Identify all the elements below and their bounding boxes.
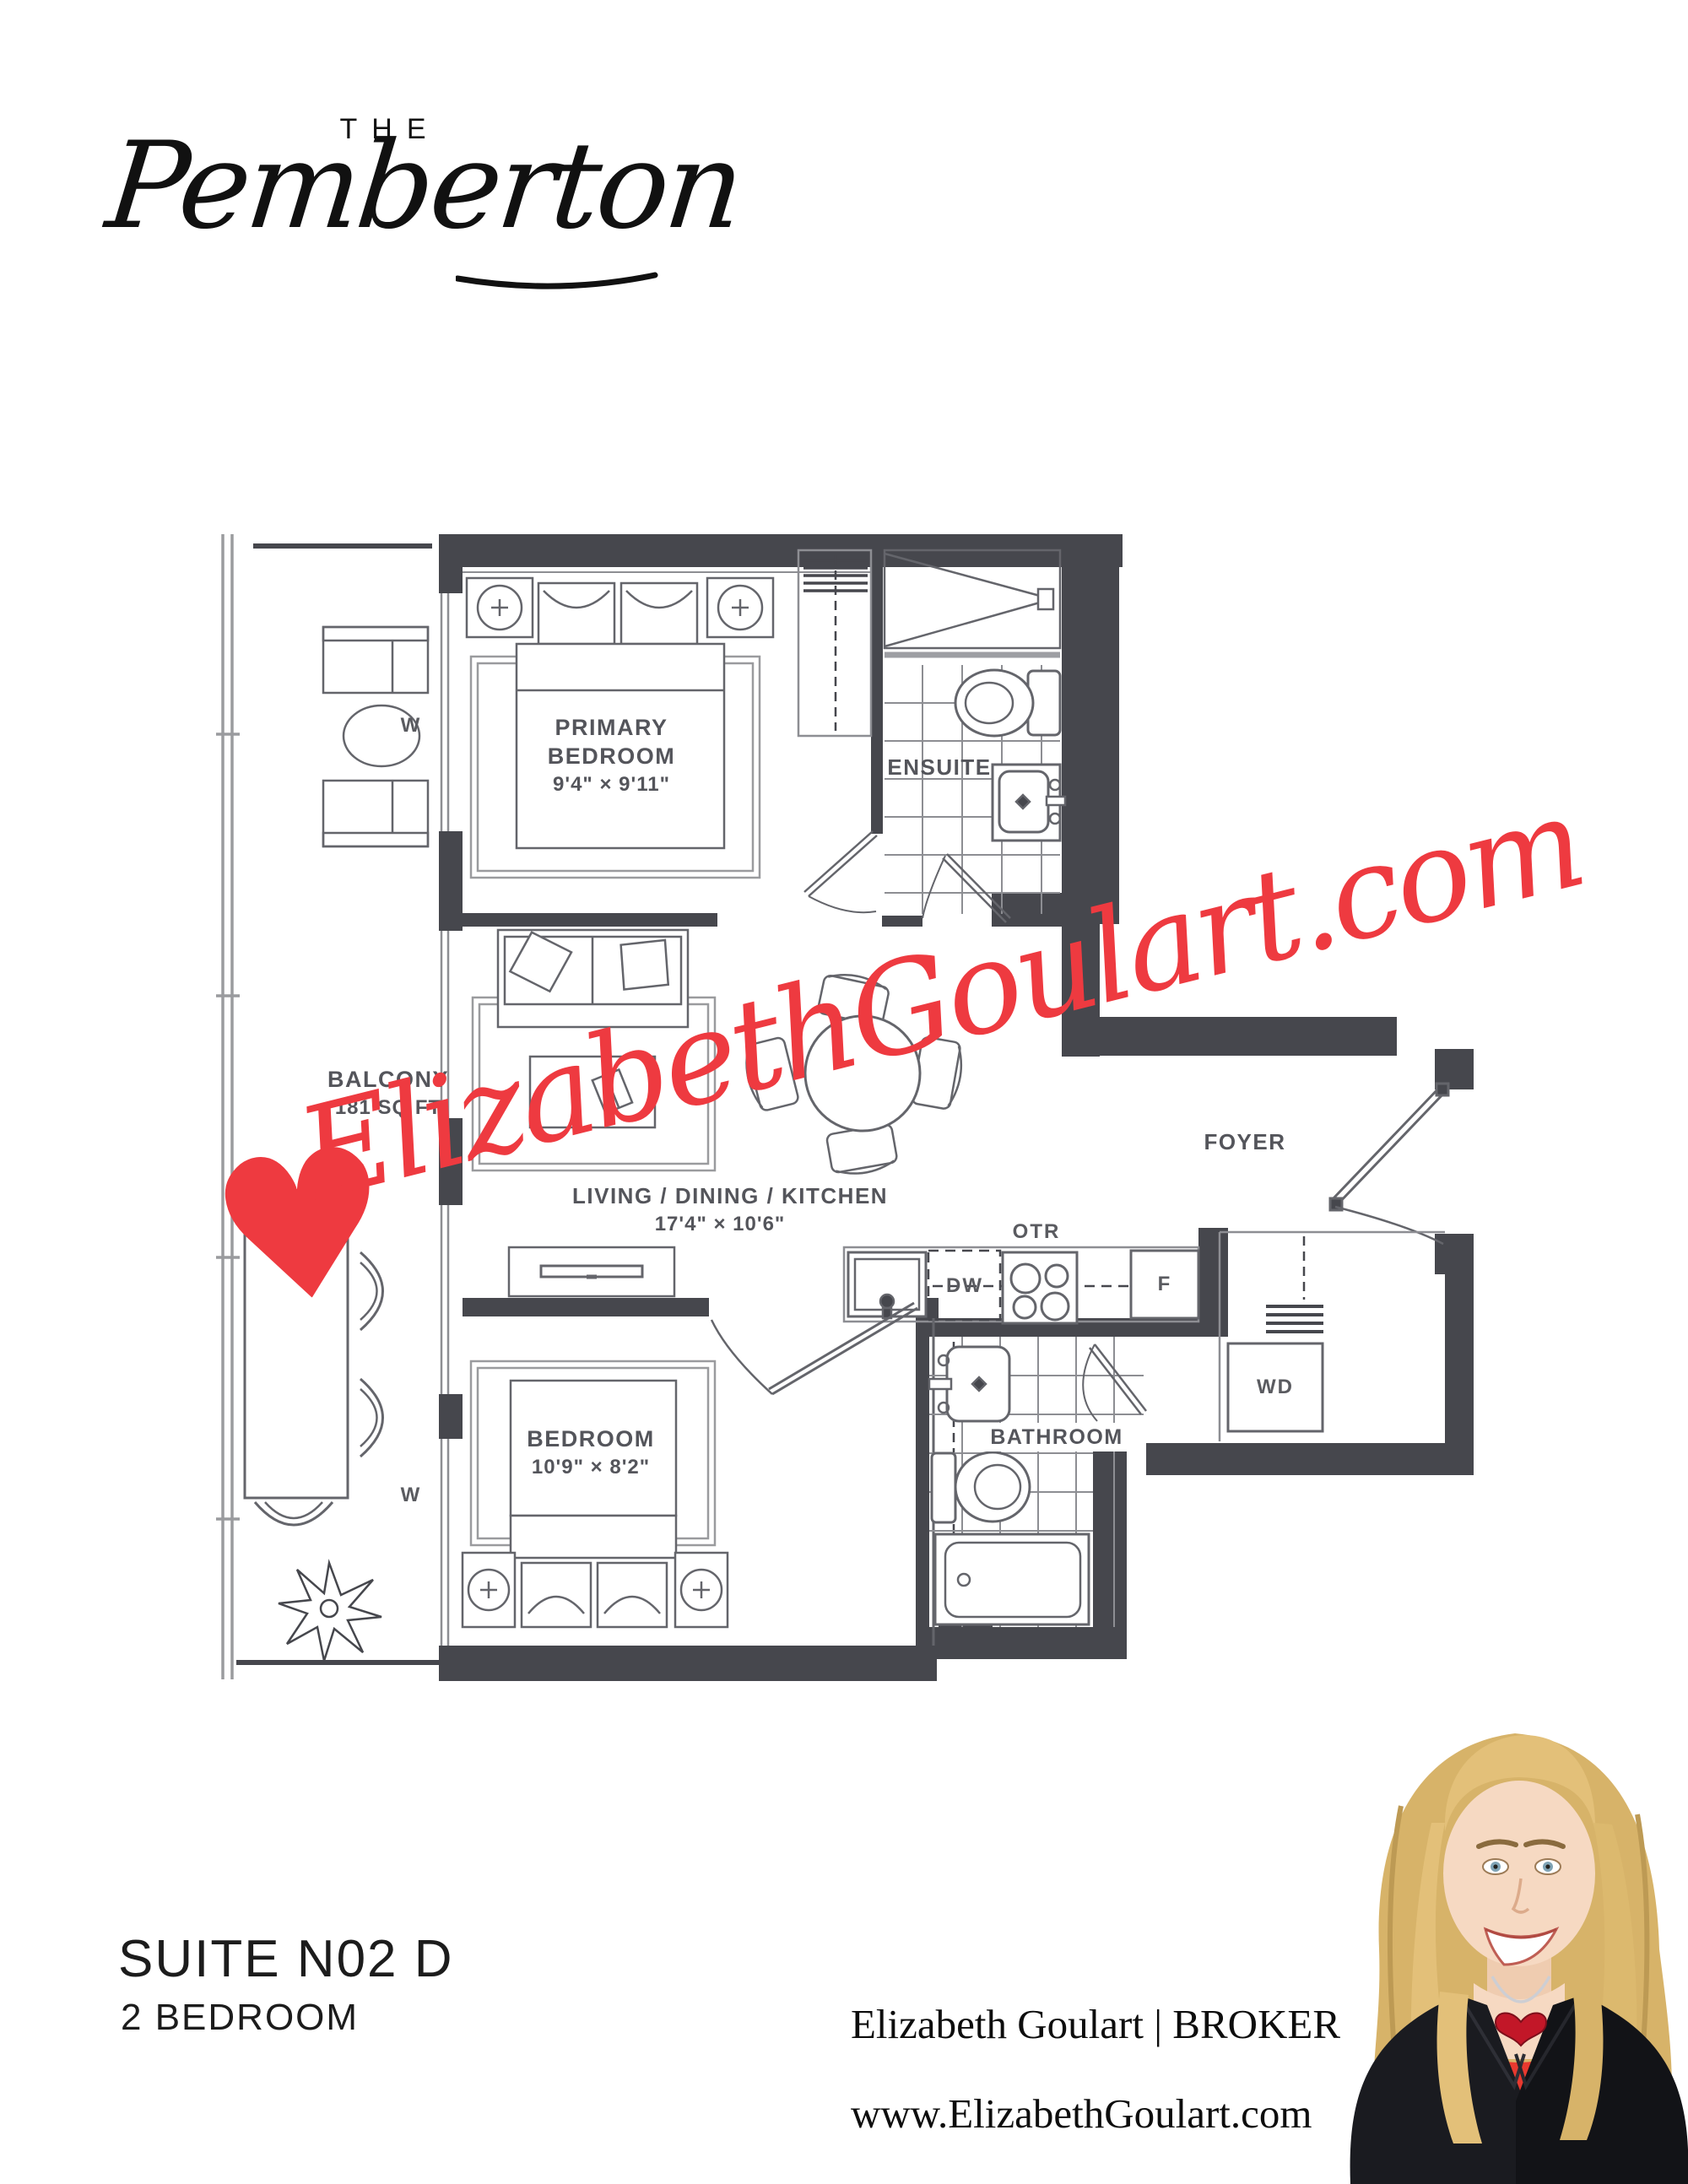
primary-closet (798, 550, 871, 736)
agent-website: www.ElizabethGoulart.com (851, 2089, 1312, 2138)
label-fridge: F (1135, 1273, 1194, 1296)
primary-bedroom-door (804, 831, 877, 912)
label-living-dining-kitchen: LIVING / DINING / KITCHEN 17'4" × 10'6" (572, 1181, 868, 1239)
entry-closet (1220, 1232, 1445, 1441)
label-foyer: FOYER (1177, 1127, 1312, 1156)
entry-door (1330, 1084, 1448, 1244)
label-wd: WD (1228, 1376, 1323, 1399)
label-otr: OTR (996, 1220, 1077, 1244)
bedroom-furniture (463, 1318, 993, 1646)
label-ensuite: ENSUITE (876, 753, 1003, 781)
label-bathroom: BATHROOM (986, 1423, 1128, 1451)
label-dw: DW (935, 1274, 994, 1298)
window-marker-2: W (397, 1484, 425, 1507)
window-marker-1: W (397, 714, 425, 738)
flyer-page: { "brand": { "pre": "THE", "name": "Pemb… (0, 0, 1688, 2184)
label-bedroom: BEDROOM 10'9" × 8'2" (506, 1424, 675, 1482)
suite-title: SUITE N02 D (118, 1929, 454, 1989)
plant (279, 1563, 381, 1661)
label-primary-bedroom: PRIMARY BEDROOM 9'4" × 9'11" (517, 713, 706, 799)
bathroom-fixtures (929, 1337, 1146, 1627)
broker-portrait (1266, 1705, 1688, 2184)
balcony-rail (216, 534, 240, 1679)
ensuite-fixtures (885, 550, 1065, 922)
suite-type: 2 BEDROOM (121, 1997, 359, 2039)
